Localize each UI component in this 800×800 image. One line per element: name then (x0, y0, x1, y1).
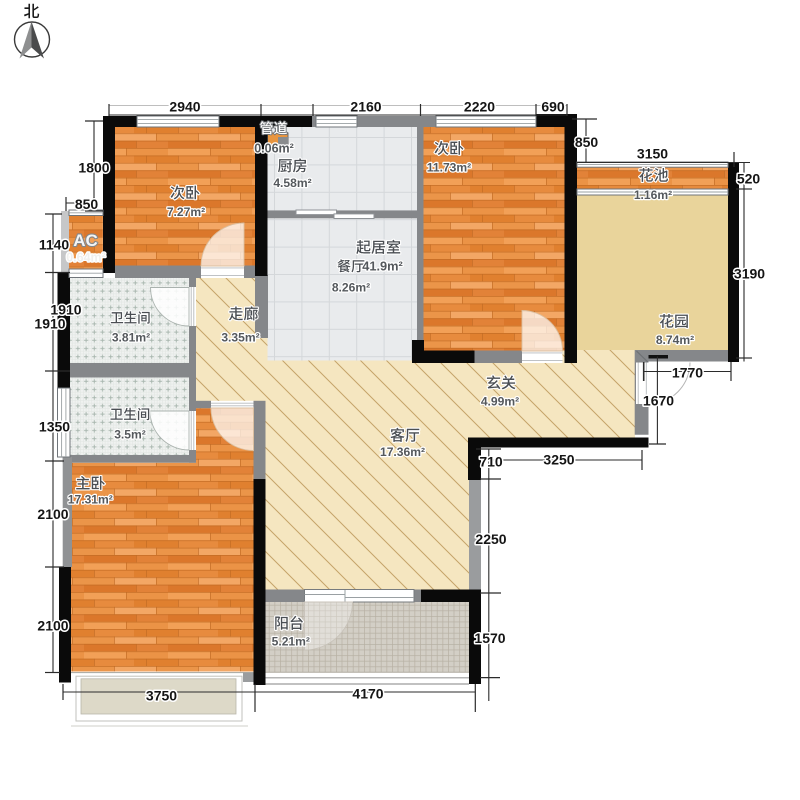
svg-text:1770: 1770 (672, 365, 703, 381)
svg-text:17.36m²: 17.36m² (380, 445, 425, 459)
svg-text:4.58m²: 4.58m² (273, 176, 311, 190)
svg-text:690: 690 (541, 99, 565, 115)
svg-text:2220: 2220 (464, 99, 495, 115)
svg-text:11.73m²: 11.73m² (427, 160, 471, 174)
svg-text:1140: 1140 (39, 237, 70, 253)
svg-text:850: 850 (575, 134, 599, 150)
svg-text:4.99m²: 4.99m² (481, 394, 519, 408)
svg-text:1910: 1910 (34, 316, 65, 332)
svg-text:0.64m²: 0.64m² (66, 251, 106, 265)
svg-text:3.35m²: 3.35m² (221, 330, 259, 344)
svg-text:710: 710 (479, 454, 503, 470)
svg-text:1670: 1670 (643, 393, 674, 409)
svg-text:2250: 2250 (475, 531, 506, 547)
svg-text:3150: 3150 (637, 146, 668, 162)
svg-text:3750: 3750 (146, 688, 177, 704)
svg-text:4170: 4170 (352, 686, 383, 702)
svg-text:0.06m²: 0.06m² (254, 142, 294, 156)
svg-text:3.81m²: 3.81m² (112, 330, 150, 344)
svg-text:1570: 1570 (474, 630, 505, 646)
svg-text:8.74m²: 8.74m² (656, 333, 694, 347)
svg-text:520: 520 (737, 171, 761, 187)
svg-text:41.9m²: 41.9m² (362, 259, 403, 274)
svg-text:AC: AC (73, 231, 98, 250)
svg-text:8.26m²: 8.26m² (332, 280, 370, 294)
svg-text:2160: 2160 (350, 99, 381, 115)
svg-text:2100: 2100 (37, 506, 68, 522)
svg-text:850: 850 (75, 196, 99, 212)
svg-text:17.31m²: 17.31m² (68, 493, 113, 507)
svg-text:3250: 3250 (543, 452, 574, 468)
svg-text:3190: 3190 (734, 266, 765, 282)
svg-text:1800: 1800 (78, 160, 109, 176)
svg-text:3.5m²: 3.5m² (114, 427, 146, 441)
svg-text:1350: 1350 (39, 419, 70, 435)
svg-text:2940: 2940 (169, 99, 200, 115)
svg-text:5.21m²: 5.21m² (272, 634, 310, 648)
svg-text:1.16m²: 1.16m² (634, 188, 672, 202)
svg-text:2100: 2100 (37, 618, 68, 634)
svg-text:7.27m²: 7.27m² (167, 205, 205, 219)
